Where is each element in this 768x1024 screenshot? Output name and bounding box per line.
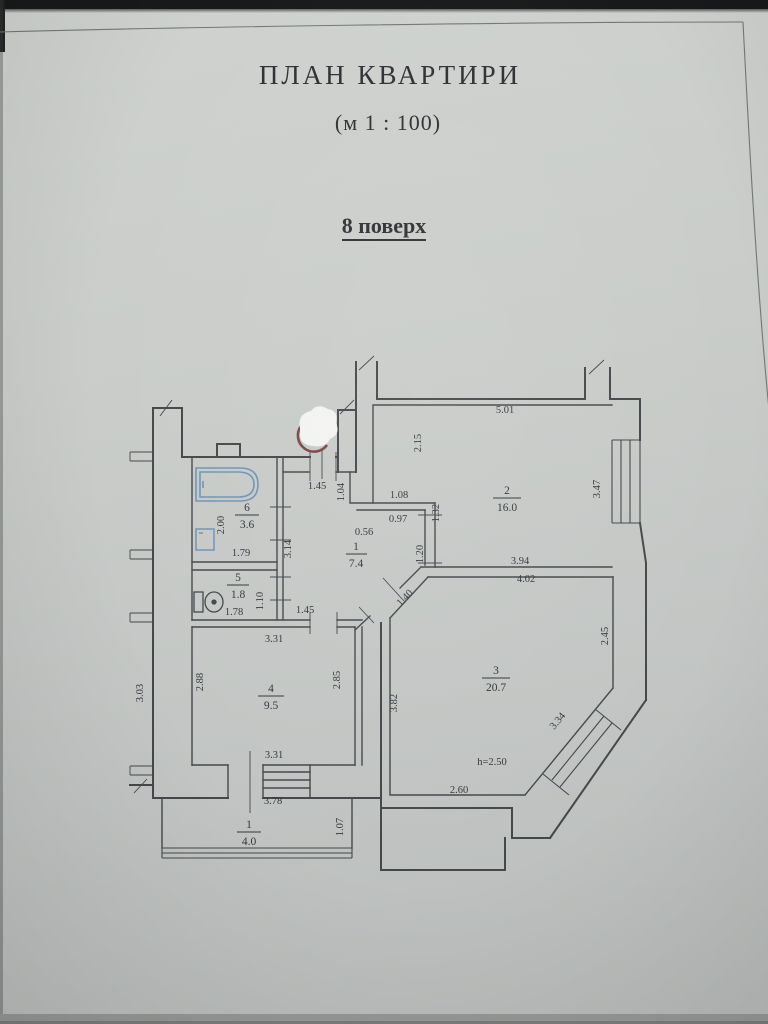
dim-label-room4-left: 2.88 (195, 673, 206, 691)
dim-label-room3-bottom: 2.60 (450, 785, 468, 796)
walls-exterior (130, 362, 646, 870)
dim-label-room3-left: 3.82 (389, 694, 400, 712)
dim-label-wc-width: 1.78 (225, 607, 243, 618)
room-number: 2 (504, 485, 510, 497)
room-area: 3.6 (240, 519, 255, 531)
correction-blob (298, 406, 338, 451)
dim-label-outer-left: 3.03 (135, 684, 146, 702)
dim-label-room2-left: 2.15 (413, 434, 424, 452)
dim-label-room3-window: 3.34 (548, 710, 569, 732)
dim-label-hall-wall-right: 1.32 (431, 504, 442, 522)
room-labels: 1 7.4 2 16.0 3 20.7 4 9.5 5 (227, 485, 521, 848)
dim-label-bath-depth: 2.00 (216, 516, 227, 534)
whiteout-blob (299, 406, 337, 446)
dim-label-hall-door-room3: 1.40 (395, 588, 416, 609)
room-area: 9.5 (264, 700, 279, 712)
dim-label-wc-depth: 1.10 (255, 592, 266, 610)
dim-label-room2-bottom-outer: 4.02 (517, 574, 535, 585)
ceiling-height-note: h=2.50 (477, 757, 507, 768)
room-number: 1 (246, 819, 252, 831)
dim-label-room2-right: 3.47 (592, 480, 603, 498)
dim-label-room4-bottom: 3.31 (265, 750, 283, 761)
dim-label-hall-left: 3.14 (283, 539, 294, 558)
room-area: 1.8 (231, 589, 246, 601)
sink-icon (196, 529, 214, 550)
dim-label-balcony-top: 3.78 (264, 796, 282, 807)
room-label-balcony: 1 4.0 (237, 819, 261, 848)
dim-label-room4-top: 3.31 (265, 634, 283, 645)
room-label-room2: 2 16.0 (493, 485, 521, 514)
page-frame-line (0, 22, 768, 420)
fixtures (194, 468, 258, 612)
room-label-bathroom: 6 3.6 (235, 502, 259, 531)
room-number: 3 (493, 665, 499, 677)
dim-label-hall-door-room4: 1.45 (296, 605, 314, 616)
dim-label-balcony-right: 1.07 (335, 818, 346, 836)
room-number: 1 (353, 541, 359, 553)
room-label-room4: 4 9.5 (258, 683, 284, 712)
dim-label-room2-top: 5.01 (496, 405, 514, 416)
room-label-wc: 5 1.8 (227, 572, 249, 601)
dim-label-room4-right: 2.85 (332, 671, 343, 689)
dim-label-entry-width: 1.45 (308, 481, 326, 492)
dim-label-hall-door-room2: 1.20 (415, 545, 426, 563)
dim-label-room2-bottom-inner: 3.94 (511, 556, 530, 567)
window-room2-icon (612, 440, 640, 523)
dim-label-room3-right: 2.45 (600, 627, 611, 645)
room-area: 20.7 (486, 682, 506, 694)
room-area: 4.0 (242, 836, 257, 848)
dim-label-bath-width: 1.79 (232, 548, 250, 559)
room-label-hallway: 1 7.4 (346, 541, 367, 570)
balcony-railing-icon (162, 848, 352, 858)
dim-label-hall-right-upper: 1.04 (336, 482, 347, 501)
photographed-document: ПЛАН КВАРТИРИ (м 1 : 100) 8 поверх (0, 0, 768, 1024)
room-area: 7.4 (349, 558, 364, 570)
dim-label-hall-step-bottom: 0.97 (389, 514, 407, 525)
room-number: 4 (268, 683, 274, 695)
room-number: 6 (244, 502, 250, 514)
dim-label-hall-nook: 0.56 (355, 527, 373, 538)
bathtub-icon (196, 468, 258, 501)
room-area: 16.0 (497, 502, 517, 514)
room-number: 5 (235, 572, 241, 584)
floor-plan: 1 7.4 2 16.0 3 20.7 4 9.5 5 (0, 0, 768, 1024)
toilet-icon (194, 592, 223, 612)
dim-label-hall-step-top: 1.08 (390, 490, 408, 501)
room-label-room3: 3 20.7 (482, 665, 510, 694)
